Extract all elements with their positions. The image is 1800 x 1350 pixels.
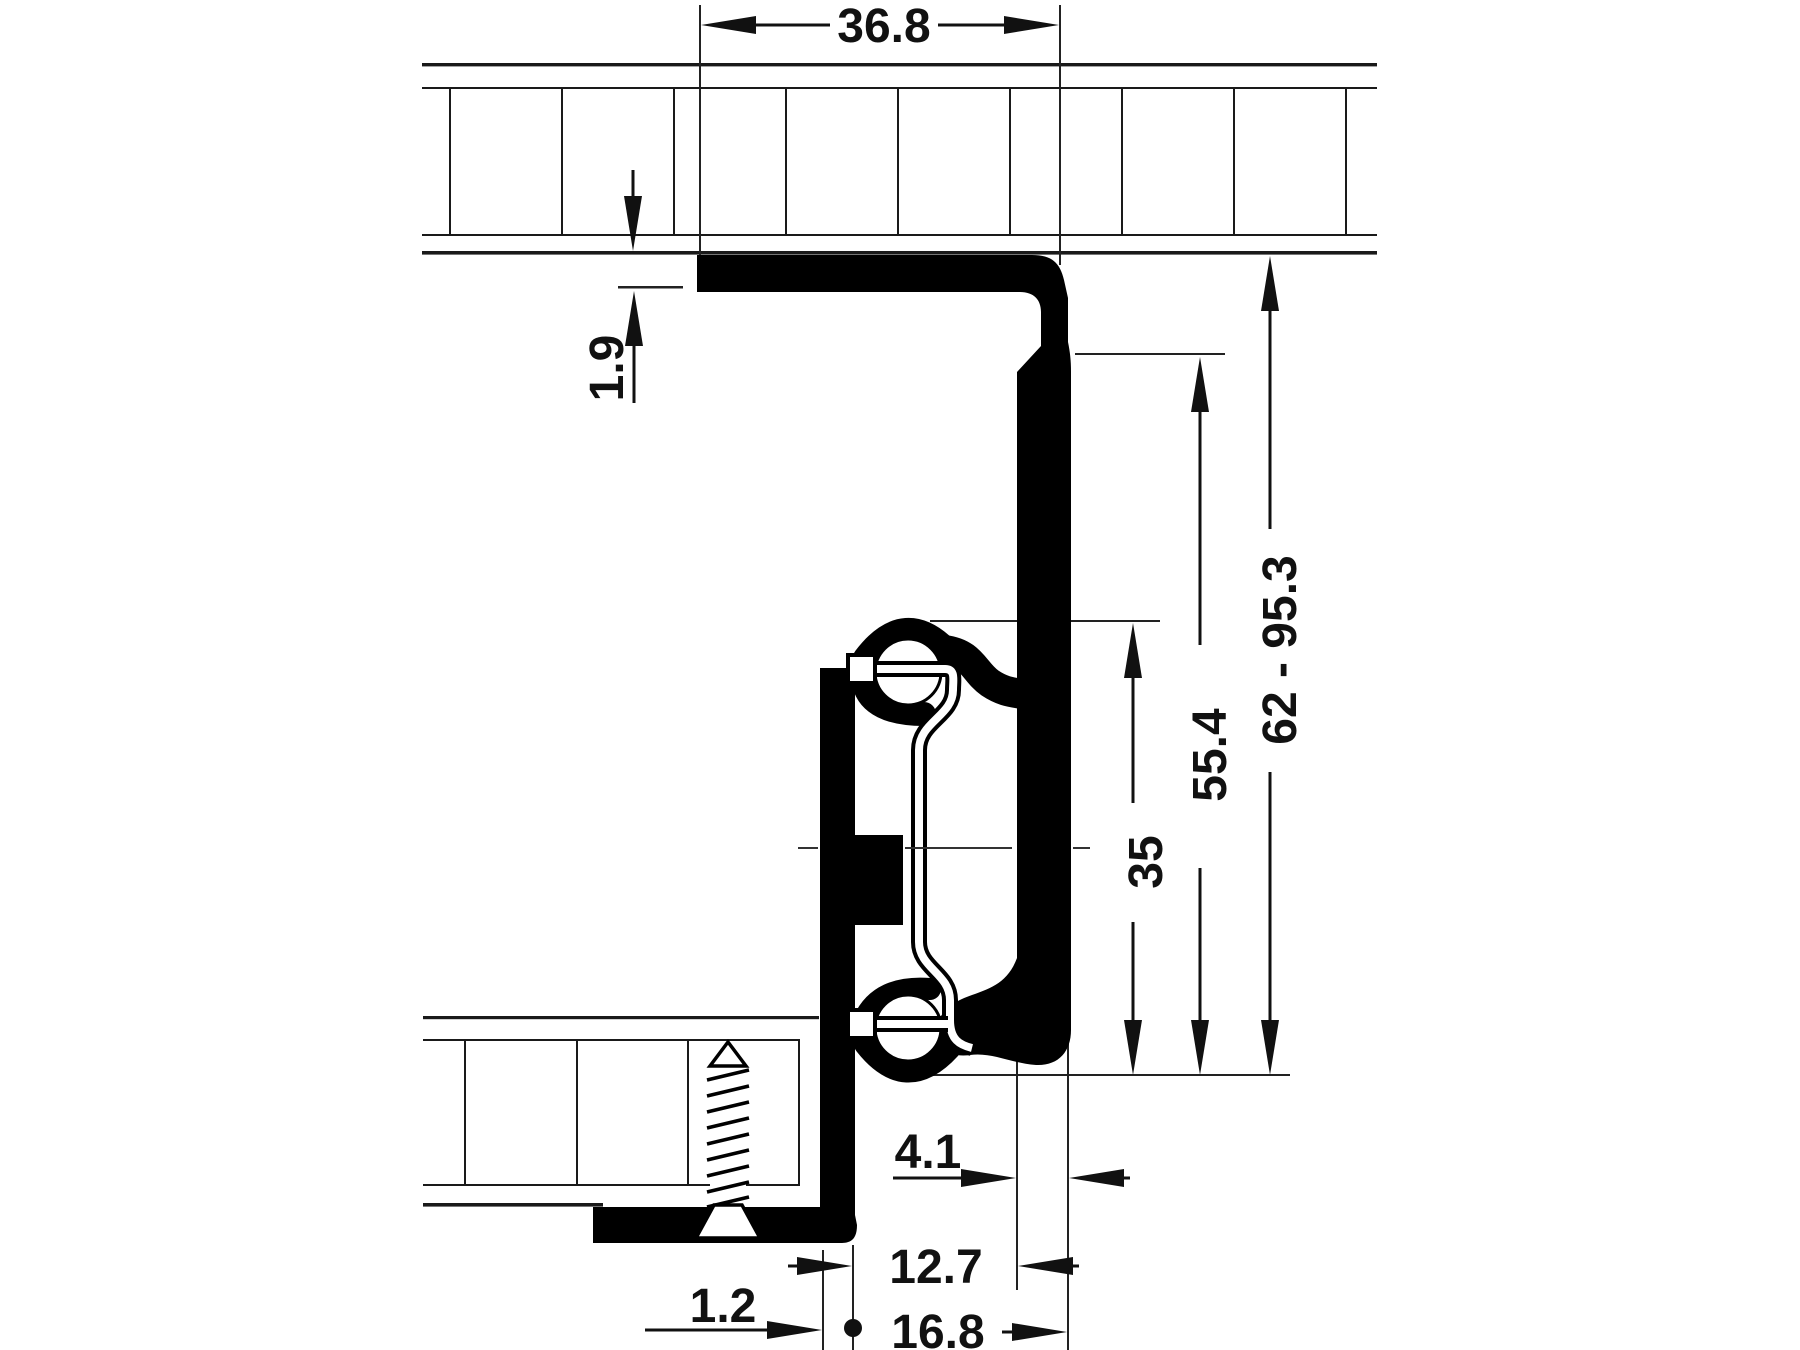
dim-edge-gap-label: 1.2 [690,1280,757,1333]
arrow-right-icon [767,1321,822,1339]
top-panel-core-hatch [449,89,1347,234]
dim-height-range-label: 62 - 95.3 [1254,555,1307,744]
arrow-up-icon [1124,623,1142,678]
reference-point-dot [844,1319,862,1337]
arrow-right-icon [961,1169,1016,1187]
arrow-down-icon [1191,1020,1209,1075]
arrow-down-icon [624,196,642,251]
dim-center-height: 35 [1120,623,1173,1075]
dim-offset-mid-label: 12.7 [889,1241,982,1294]
dim-rail-height: 55.4 [1184,357,1237,1075]
arrow-down-icon [1261,1020,1279,1075]
arrow-up-icon [1191,357,1209,412]
arrow-right-icon [797,1257,852,1275]
arrow-left-icon [1018,1257,1073,1275]
drawer-bracket-profile [593,668,903,1243]
dim-height-range: 62 - 95.3 [1254,256,1307,1075]
dim-arm-width: 4.1 [893,1126,1130,1187]
dim-top-width-label: 36.8 [837,0,930,53]
dim-offset-outer-label: 16.8 [891,1306,984,1350]
dim-offset-outer: 16.8 [844,1306,1067,1350]
dim-arm-width-label: 4.1 [895,1126,962,1179]
dim-top-width: 36.8 [701,0,1059,53]
arrow-down-icon [1124,1020,1142,1075]
arrow-right-icon [1012,1323,1067,1341]
dim-center-height-label: 35 [1120,835,1173,888]
screw-tip [710,1042,746,1066]
rail-lip-upper [848,655,875,683]
bottom-panel-core-hatch [464,1041,800,1184]
technical-drawing-canvas: 36.8 1.9 62 - 95.3 55.4 35 4.1 [0,0,1800,1350]
dim-rail-height-label: 55.4 [1184,708,1237,802]
bottom-panel [423,1016,819,1207]
top-panel [422,63,1377,255]
arrow-left-icon [701,16,756,34]
dim-offset-mid: 12.7 [788,1241,1079,1294]
dim-flange-thickness-label: 1.9 [581,335,634,402]
arrow-up-icon [1261,256,1279,311]
rail-lip-lower [848,1010,875,1038]
arrow-right-icon [1004,16,1059,34]
arrow-left-icon [1069,1169,1124,1187]
dim-edge-gap: 1.2 [645,1280,822,1339]
